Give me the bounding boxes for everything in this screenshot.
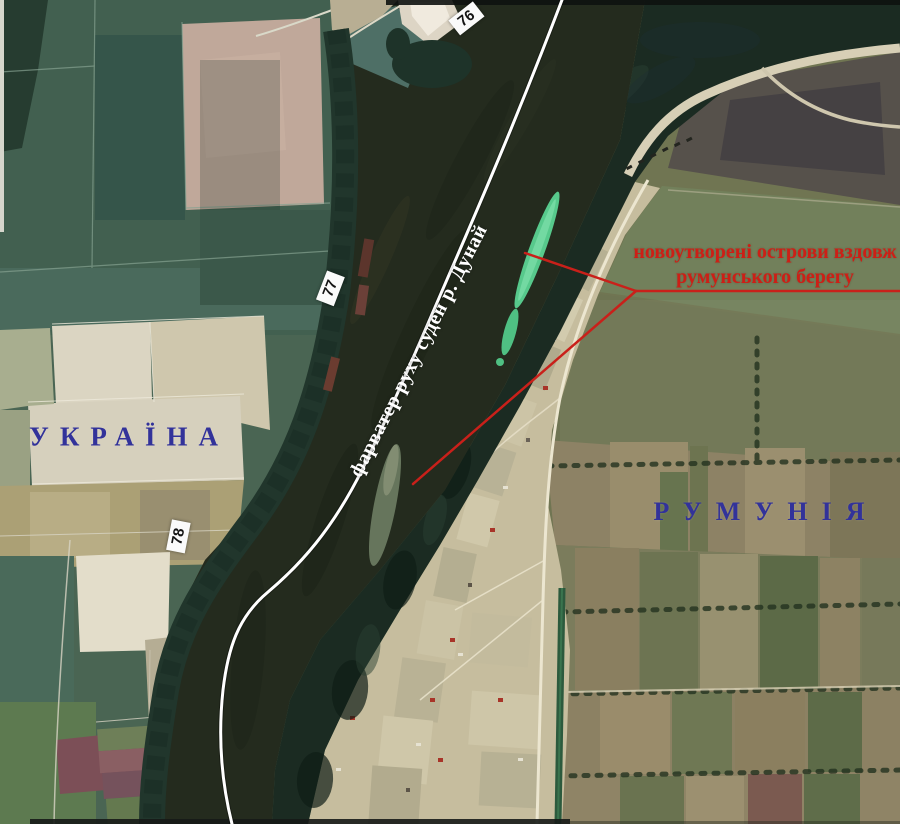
satellite-terrain	[0, 0, 900, 824]
islands-annotation-line2: румунського берегу	[633, 265, 896, 290]
country-label-romania: РУМУНІЯ	[653, 497, 878, 527]
country-label-ukraine: УКРАЇНА	[29, 422, 229, 453]
irrigation-canal	[558, 588, 562, 824]
islands-annotation: новоутворені острови вздовж румунського …	[633, 240, 896, 290]
islands-annotation-line1: новоутворені острови вздовж	[633, 240, 896, 265]
satellite-map: 76 77 78 фарватер руху суден р. Дунай но…	[0, 0, 900, 824]
